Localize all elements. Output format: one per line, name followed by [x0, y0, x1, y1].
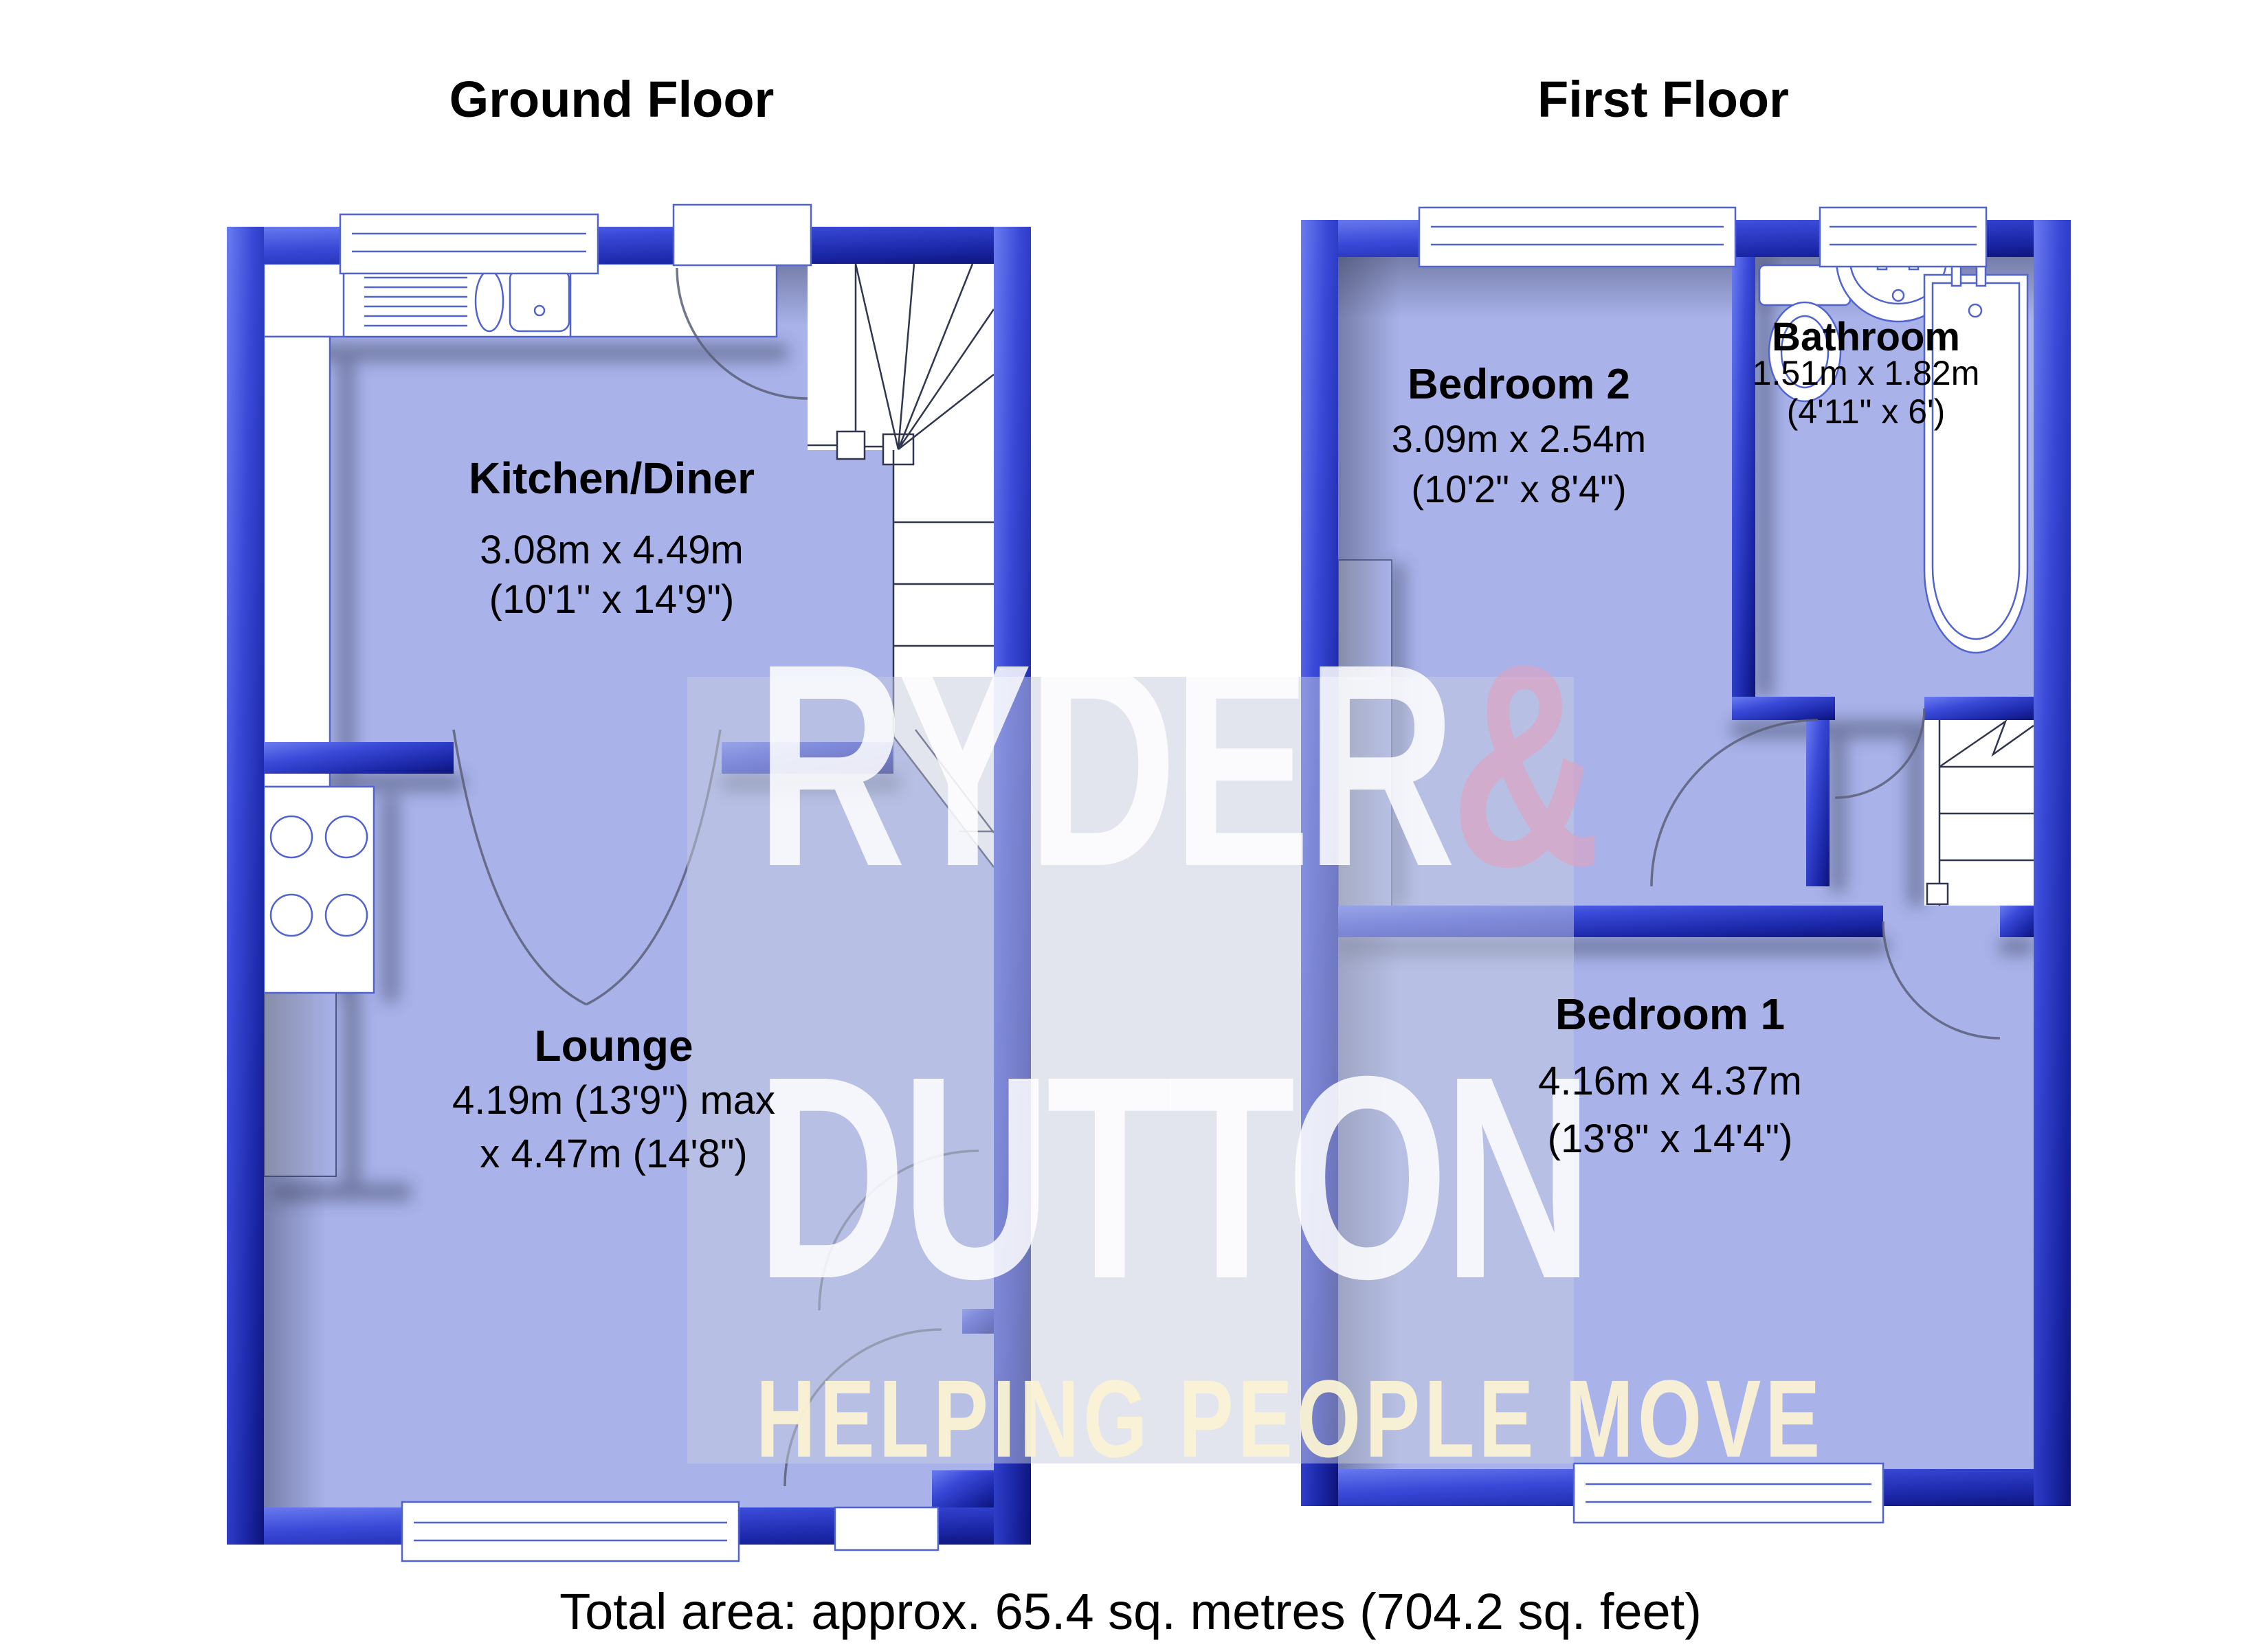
- gf-back-door-threshold: [674, 205, 811, 265]
- gf-wall-left: [227, 227, 264, 1545]
- total-area-text: Total area: approx. 65.4 sq. metres (704…: [559, 1584, 1702, 1639]
- bathtub-icon: [1924, 253, 2027, 653]
- bedroom2-window: [1419, 207, 1735, 267]
- bedroom2-dim-metric: 3.09m x 2.54m: [1392, 418, 1646, 460]
- kitchen-diner-name: Kitchen/Diner: [469, 455, 755, 502]
- kitchen-diner-dim-metric: 3.08m x 4.49m: [480, 529, 744, 572]
- kitchen-counter-left: [264, 337, 330, 787]
- bedroom1-dim-imperial: (13'8" x 14'4"): [1548, 1118, 1793, 1161]
- watermark-line1: RYDER&: [756, 622, 1597, 910]
- lounge-dim-metric: 4.19m (13'9") max: [452, 1079, 775, 1123]
- bedroom2-name: Bedroom 2: [1408, 362, 1630, 408]
- bedroom1-dim-metric: 4.16m x 4.37m: [1538, 1060, 1802, 1103]
- gf-top-window: [340, 214, 598, 273]
- gf-divider-left: [264, 742, 454, 774]
- bathroom-bottom-wall-left: [1732, 697, 1835, 720]
- watermark-ampersand: &: [1451, 605, 1596, 927]
- bathroom-left-wall: [1732, 257, 1755, 697]
- ground-floor-title: Ground Floor: [449, 72, 775, 127]
- bathroom-dim-imperial: (4'11" x 6'): [1787, 393, 1945, 430]
- first-floor-title: First Floor: [1537, 72, 1789, 127]
- gf-front-door-threshold: [835, 1507, 938, 1550]
- lounge-dim-imperial: x 4.47m (14'8"): [480, 1133, 748, 1176]
- watermark-tagline: HELPING PEOPLE MOVE: [756, 1364, 1824, 1474]
- lounge-name: Lounge: [534, 1022, 693, 1070]
- bathroom-window: [1820, 207, 1986, 267]
- hob-icon: [264, 787, 374, 993]
- watermark-line2: DUTTON: [756, 1034, 1588, 1323]
- bedroom1-name: Bedroom 1: [1555, 991, 1785, 1038]
- ff-divider-right: [2000, 906, 2034, 937]
- bathroom-bottom-wall-right: [1924, 697, 2034, 720]
- first-floor-stairs: [1924, 720, 2034, 906]
- kitchen-diner-dim-imperial: (10'1" x 14'9"): [489, 579, 735, 622]
- floorplan-page: RYDER& DUTTON HELPING PEOPLE MOVE Ground…: [0, 0, 2268, 1649]
- bathroom-dim-metric: 1.51m x 1.82m: [1753, 355, 1980, 392]
- ff-wall-right: [2034, 220, 2071, 1506]
- watermark-ryder: RYDER: [756, 605, 1451, 927]
- bedroom2-dim-imperial: (10'2" x 8'4"): [1411, 469, 1626, 510]
- gf-bottom-window: [402, 1502, 739, 1561]
- bathroom-name: Bathroom: [1772, 316, 1960, 359]
- landing-wall-stub: [1806, 720, 1830, 886]
